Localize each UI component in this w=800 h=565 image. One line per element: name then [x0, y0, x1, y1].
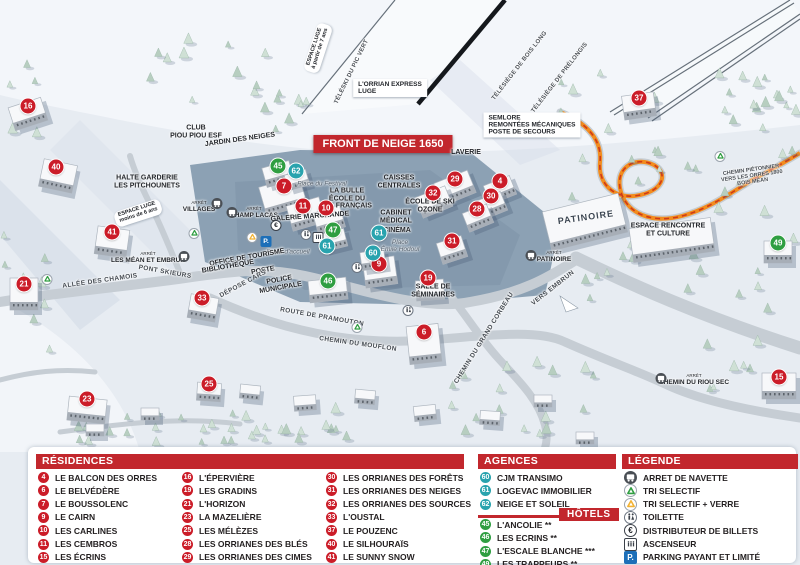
- residence-label: LE BELVÉDÈRE: [55, 486, 120, 496]
- residence-item: 7LE BOUSSOLENC: [38, 498, 128, 511]
- map-marker-6: 6: [417, 325, 432, 340]
- resort-map: FRONT DE NEIGE 1650 ESPACE LUGEà partir …: [0, 0, 800, 565]
- legend-marker-7: 7: [38, 499, 49, 510]
- front-de-neige-banner: FRONT DE NEIGE 1650: [313, 135, 452, 153]
- residence-item: 19LES GRADINS: [182, 484, 257, 497]
- map-marker-47: 47: [326, 223, 341, 238]
- residence-label: LE BOUSSOLENC: [55, 499, 128, 509]
- map-label: ARRÊTLES MÉAN ET EMBRUN: [111, 252, 185, 264]
- map-marker-49: 49: [771, 236, 786, 251]
- residence-item: 28LES ORRIANES DES BLÉS: [182, 538, 308, 551]
- residence-item: 4LE BALCON DES ORRES: [38, 471, 157, 484]
- wc-icon: [624, 511, 637, 524]
- residence-label: LE SILHOURAÏS: [343, 539, 409, 549]
- residence-item: 33L'OUSTAL: [326, 511, 385, 524]
- map-marker-40: 40: [49, 160, 64, 175]
- map-label: CHEMIN PIÉTONNIERVERS LES ORRES 1800BOIS…: [720, 164, 784, 190]
- legend-marker-11: 11: [38, 539, 49, 550]
- residence-label: LES ORRIANES DES CIMES: [199, 552, 312, 562]
- map-marker-11: 11: [296, 199, 311, 214]
- map-marker-29: 29: [448, 172, 463, 187]
- legende-item: €DISTRIBUTEUR DE BILLETS: [624, 524, 758, 537]
- legend-marker-10: 10: [38, 525, 49, 536]
- residences-header: RÉSIDENCES: [36, 454, 464, 469]
- residence-label: LE SUNNY SNOW: [343, 552, 415, 562]
- map-label: ALLÉE DES CHAMOIS: [62, 272, 138, 289]
- residence-item: 37LE POUZENC: [326, 524, 398, 537]
- map-marker-33: 33: [195, 291, 210, 306]
- map-label: ARRÊTCHEMIN DU RIOU SEC: [659, 374, 729, 386]
- residence-item: 11LES CEMBROS: [38, 538, 117, 551]
- recycle-green-icon-wrap: [352, 318, 363, 336]
- legend-marker-47: 47: [480, 546, 491, 557]
- residence-label: LE CAIRN: [55, 512, 95, 522]
- parking-icon: P.: [261, 236, 272, 247]
- bus-icon: [624, 471, 637, 484]
- map-label: CAISSESCENTRALES: [378, 174, 421, 189]
- legend-marker-21: 21: [182, 499, 193, 510]
- residence-item: 40LE SILHOURAÏS: [326, 538, 409, 551]
- residence-item: 6LE BELVÉDÈRE: [38, 484, 120, 497]
- residence-label: LES ORRIANES DES SOURCES: [343, 499, 471, 509]
- legende-label: ARRET DE NAVETTE: [643, 473, 728, 483]
- bus-icon: [227, 207, 238, 218]
- euro-icon: €: [624, 524, 637, 537]
- map-marker-10: 10: [319, 201, 334, 216]
- legend-marker-37: 37: [326, 525, 337, 536]
- residence-item: 15LES ÉCRINS: [38, 551, 106, 564]
- map-label: CHEMIN DU GRAND CORBEAU: [453, 291, 515, 385]
- elevator-icon: [624, 538, 637, 551]
- map-label: ESPACE LUGEà partir de 7 ans: [303, 22, 334, 75]
- legend-marker-28: 28: [182, 539, 193, 550]
- legende-label: TOILETTE: [643, 512, 684, 522]
- map-marker-32: 32: [426, 186, 441, 201]
- map-label: HALTE GARDERIELES PITCHOUNETS: [114, 174, 180, 189]
- recycle-green-icon: [42, 274, 53, 285]
- wc-icon: [352, 262, 363, 273]
- legend-marker-23: 23: [182, 512, 193, 523]
- residence-label: LES ORRIANES DES BLÉS: [199, 539, 308, 549]
- parking-icon: P.: [624, 551, 637, 564]
- hotel-item: 46LES ECRINS **: [480, 531, 557, 544]
- hotels-header: HÔTELS: [559, 508, 619, 521]
- residence-item: 23LA MAZELIÈRE: [182, 511, 262, 524]
- legende-item: TRI SELECTIF: [624, 484, 700, 497]
- legend-marker-30: 30: [326, 472, 337, 483]
- wc-icon: [301, 229, 312, 240]
- legende-item: TRI SELECTIF + VERRE: [624, 498, 739, 511]
- map-label: PlaceÉmile Hodoul: [381, 239, 420, 253]
- hotel-item: 45L'ANCOLIE **: [480, 518, 551, 531]
- residence-item: 32LES ORRIANES DES SOURCES: [326, 498, 471, 511]
- map-marker-21: 21: [17, 277, 32, 292]
- map-marker-19: 19: [421, 271, 436, 286]
- bus-icon: [179, 251, 190, 262]
- residence-item: 10LES CARLINES: [38, 524, 117, 537]
- residence-label: LES CARLINES: [55, 526, 117, 536]
- wc-icon-wrap: [301, 225, 312, 243]
- legende-label: TRI SELECTIF: [643, 486, 700, 496]
- map-label: CINÉMA: [383, 227, 411, 235]
- map-marker-31: 31: [445, 234, 460, 249]
- legend-marker-4: 4: [38, 472, 49, 483]
- recycle-green-icon: [352, 322, 363, 333]
- recycle-green-icon: [624, 484, 637, 497]
- recycle-green-icon: [715, 151, 726, 162]
- hotel-label: LES ECRINS **: [497, 533, 557, 543]
- legend-marker-41: 41: [326, 552, 337, 563]
- map-marker-46: 46: [321, 274, 336, 289]
- hotel-label: L'ESCALE BLANCHE ***: [497, 546, 595, 556]
- legend-marker-6: 6: [38, 485, 49, 496]
- agency-label: LOGEVAC IMMOBILIER: [497, 486, 592, 496]
- map-label: TÉLÉSIÈGE DE PRÉLONGIS: [531, 42, 590, 115]
- map-marker-16: 16: [21, 99, 36, 114]
- bus-icon: [212, 198, 223, 209]
- residence-label: L'ÉPERVIÈRE: [199, 473, 255, 483]
- residence-label: L'OUSTAL: [343, 512, 385, 522]
- map-marker-25: 25: [202, 377, 217, 392]
- map-marker-37: 37: [632, 91, 647, 106]
- legend-panel: RÉSIDENCES 4LE BALCON DES ORRES6LE BELVÉ…: [28, 447, 796, 563]
- residence-item: 21L'HORIZON: [182, 498, 245, 511]
- map-marker-41: 41: [105, 225, 120, 240]
- residence-label: LA MAZELIÈRE: [199, 512, 262, 522]
- map-label: Place du Festival: [297, 180, 347, 187]
- residence-item: 29LES ORRIANES DES CIMES: [182, 551, 312, 564]
- recycle-yellow-icon-wrap: [247, 228, 258, 246]
- map-label: L'ORRIAN EXPRESSLUGE: [353, 79, 427, 97]
- legend-marker-32: 32: [326, 499, 337, 510]
- wc-icon-wrap: [403, 301, 414, 319]
- map-label: ÉCOLE DE SKIOZONE: [405, 198, 454, 213]
- agency-item: 60CJM TRANSIMO: [480, 471, 563, 484]
- residence-label: LES ORRIANES DES NEIGES: [343, 486, 461, 496]
- residence-label: LES ORRIANES DES FORÊTS: [343, 473, 463, 483]
- bus-icon-wrap: [212, 196, 223, 214]
- hotel-item: 49LES TRAPPEURS **: [480, 558, 577, 565]
- legend-marker-9: 9: [38, 512, 49, 523]
- legende-item: ASCENSEUR: [624, 538, 696, 551]
- map-marker-30: 30: [484, 189, 499, 204]
- bus-icon-wrap: [526, 248, 537, 266]
- euro-icon-wrap: €: [271, 214, 282, 232]
- map-marker-61: 61: [372, 226, 387, 241]
- map-marker-45: 45: [271, 159, 286, 174]
- residence-label: LES CEMBROS: [55, 539, 117, 549]
- legende-label: PARKING PAYANT ET LIMITÉ: [643, 552, 760, 562]
- wc-icon-wrap: [352, 258, 363, 276]
- hotel-label: L'ANCOLIE **: [497, 520, 551, 530]
- residence-item: 16L'ÉPERVIÈRE: [182, 471, 255, 484]
- recycle-green-icon-wrap: [715, 147, 726, 165]
- map-label: CLUBPIOU PIOU ESF: [170, 124, 222, 139]
- map-marker-23: 23: [80, 392, 95, 407]
- residence-label: L'HORIZON: [199, 499, 245, 509]
- legend-marker-60: 60: [480, 472, 491, 483]
- hotel-item: 47L'ESCALE BLANCHE ***: [480, 545, 595, 558]
- legend-marker-62: 62: [480, 499, 491, 510]
- residence-label: LE BALCON DES ORRES: [55, 473, 157, 483]
- map-label: SALLE DESÉMINAIRES: [411, 283, 455, 298]
- map-marker-62: 62: [289, 164, 304, 179]
- map-label: LAVERIE: [451, 149, 481, 157]
- residence-label: LES GRADINS: [199, 486, 257, 496]
- residence-label: LES MÉLÈZES: [199, 526, 258, 536]
- map-label: ARRÊTPATINOIRE: [537, 251, 571, 263]
- recycle-green-icon: [189, 228, 200, 239]
- bus-icon-wrap: [179, 249, 190, 267]
- residence-item: 41LE SUNNY SNOW: [326, 551, 415, 564]
- legend-marker-29: 29: [182, 552, 193, 563]
- map-label: GALERIE MARCHANDE: [270, 210, 349, 223]
- recycle-yellow-icon: [624, 498, 637, 511]
- legend-marker-19: 19: [182, 485, 193, 496]
- legend-marker-40: 40: [326, 539, 337, 550]
- legend-marker-45: 45: [480, 519, 491, 530]
- residence-item: 25LES MÉLÈZES: [182, 524, 258, 537]
- legend-marker-49: 49: [480, 559, 491, 565]
- recycle-yellow-icon: [247, 232, 258, 243]
- legende-item: TOILETTE: [624, 511, 684, 524]
- map-marker-7: 7: [277, 179, 292, 194]
- agency-item: 62NEIGE ET SOLEIL: [480, 498, 570, 511]
- legende-label: TRI SELECTIF + VERRE: [643, 499, 739, 509]
- map-marker-4: 4: [493, 174, 508, 189]
- legend-marker-61: 61: [480, 485, 491, 496]
- map-label: VERS EMBRUN: [530, 269, 576, 307]
- legend-marker-46: 46: [480, 532, 491, 543]
- residence-item: 9LE CAIRN: [38, 511, 95, 524]
- bus-icon: [656, 373, 667, 384]
- map-label: ARRÊTVILLAGES: [183, 201, 216, 213]
- residence-label: LES ÉCRINS: [55, 552, 106, 562]
- hotel-label: LES TRAPPEURS **: [497, 559, 577, 565]
- legende-label: DISTRIBUTEUR DE BILLETS: [643, 526, 758, 536]
- map-marker-15: 15: [772, 370, 787, 385]
- map-marker-61: 61: [320, 239, 335, 254]
- legende-header: LÉGENDE: [622, 454, 798, 469]
- legend-marker-15: 15: [38, 552, 49, 563]
- map-label: ESPACE RENCONTREET CULTURE: [631, 222, 706, 237]
- bus-icon: [526, 250, 537, 261]
- bus-icon-wrap: [656, 371, 667, 389]
- bus-icon-wrap: [227, 205, 238, 223]
- map-marker-28: 28: [470, 202, 485, 217]
- map-marker-60: 60: [366, 246, 381, 261]
- recycle-green-icon-wrap: [189, 224, 200, 242]
- legende-item: P.PARKING PAYANT ET LIMITÉ: [624, 551, 760, 564]
- recycle-green-icon-wrap: [42, 270, 53, 288]
- legende-item: ARRET DE NAVETTE: [624, 471, 728, 484]
- map-label: PATINOIRE: [557, 209, 614, 227]
- agency-item: 61LOGEVAC IMMOBILIER: [480, 484, 592, 497]
- residence-item: 30LES ORRIANES DES FORÊTS: [326, 471, 463, 484]
- legend-marker-33: 33: [326, 512, 337, 523]
- euro-icon: €: [271, 220, 282, 231]
- agency-label: CJM TRANSIMO: [497, 473, 563, 483]
- map-label: ESPACE LUGEmoins de 6 ans: [113, 198, 163, 228]
- wc-icon: [403, 305, 414, 316]
- legend-marker-16: 16: [182, 472, 193, 483]
- legend-marker-31: 31: [326, 485, 337, 496]
- map-label: TÉLÉSIÈGE DE BOIS LONG: [491, 30, 549, 101]
- parking-icon-wrap: P.: [261, 230, 272, 248]
- map-label: CHEMIN DU MOUFLON: [319, 335, 398, 353]
- map-label: SEMLOREREMONTÉES MÉCANIQUESPOSTE DE SECO…: [483, 112, 580, 137]
- residence-label: LE POUZENC: [343, 526, 398, 536]
- residence-item: 31LES ORRIANES DES NEIGES: [326, 484, 461, 497]
- legende-label: ASCENSEUR: [643, 539, 696, 549]
- agencies-header: AGENCES IMMOBILIÈRES: [478, 454, 616, 469]
- legend-marker-25: 25: [182, 525, 193, 536]
